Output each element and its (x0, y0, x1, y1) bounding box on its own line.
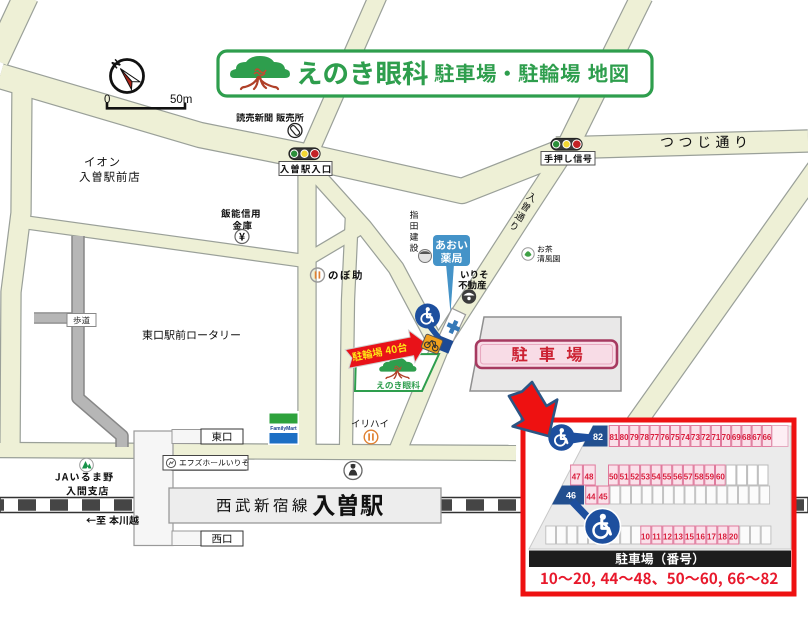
svg-text:69: 69 (732, 433, 741, 442)
svg-text:50m: 50m (170, 94, 192, 106)
svg-text:13: 13 (674, 533, 683, 542)
svg-text:50: 50 (609, 473, 618, 482)
svg-text:54: 54 (652, 473, 661, 482)
svg-text:18: 18 (718, 533, 727, 542)
svg-text:55: 55 (662, 473, 671, 482)
svg-text:82: 82 (593, 432, 603, 442)
svg-text:53: 53 (641, 473, 650, 482)
svg-text:56: 56 (673, 473, 682, 482)
svg-text:77: 77 (650, 433, 659, 442)
svg-text:48: 48 (585, 473, 594, 482)
svg-text:44: 44 (587, 493, 596, 502)
svg-text:72: 72 (701, 433, 710, 442)
svg-text:20: 20 (729, 533, 738, 542)
svg-text:71: 71 (711, 433, 720, 442)
svg-text:58: 58 (695, 473, 704, 482)
svg-text:60: 60 (716, 473, 725, 482)
svg-text:16: 16 (696, 533, 705, 542)
svg-text:67: 67 (752, 433, 761, 442)
svg-text:0: 0 (104, 94, 110, 106)
svg-text:73: 73 (691, 433, 700, 442)
svg-text:12: 12 (663, 533, 672, 542)
svg-text:75: 75 (671, 433, 680, 442)
svg-text:59: 59 (705, 473, 714, 482)
svg-text:11: 11 (652, 533, 661, 542)
svg-text:15: 15 (685, 533, 694, 542)
svg-text:52: 52 (630, 473, 639, 482)
svg-text:FamilyMart: FamilyMart (270, 426, 297, 432)
svg-text:76: 76 (660, 433, 669, 442)
svg-text:10: 10 (641, 533, 650, 542)
svg-text:57: 57 (684, 473, 693, 482)
svg-text:68: 68 (742, 433, 751, 442)
svg-text:78: 78 (640, 433, 649, 442)
svg-text:74: 74 (681, 433, 690, 442)
svg-text:47: 47 (572, 473, 581, 482)
svg-text:17: 17 (707, 533, 716, 542)
svg-text:80: 80 (620, 433, 629, 442)
svg-text:45: 45 (599, 493, 608, 502)
svg-text:81: 81 (609, 433, 618, 442)
svg-text:70: 70 (722, 433, 731, 442)
svg-text:79: 79 (630, 433, 639, 442)
svg-text:66: 66 (762, 433, 771, 442)
svg-text:51: 51 (620, 473, 629, 482)
